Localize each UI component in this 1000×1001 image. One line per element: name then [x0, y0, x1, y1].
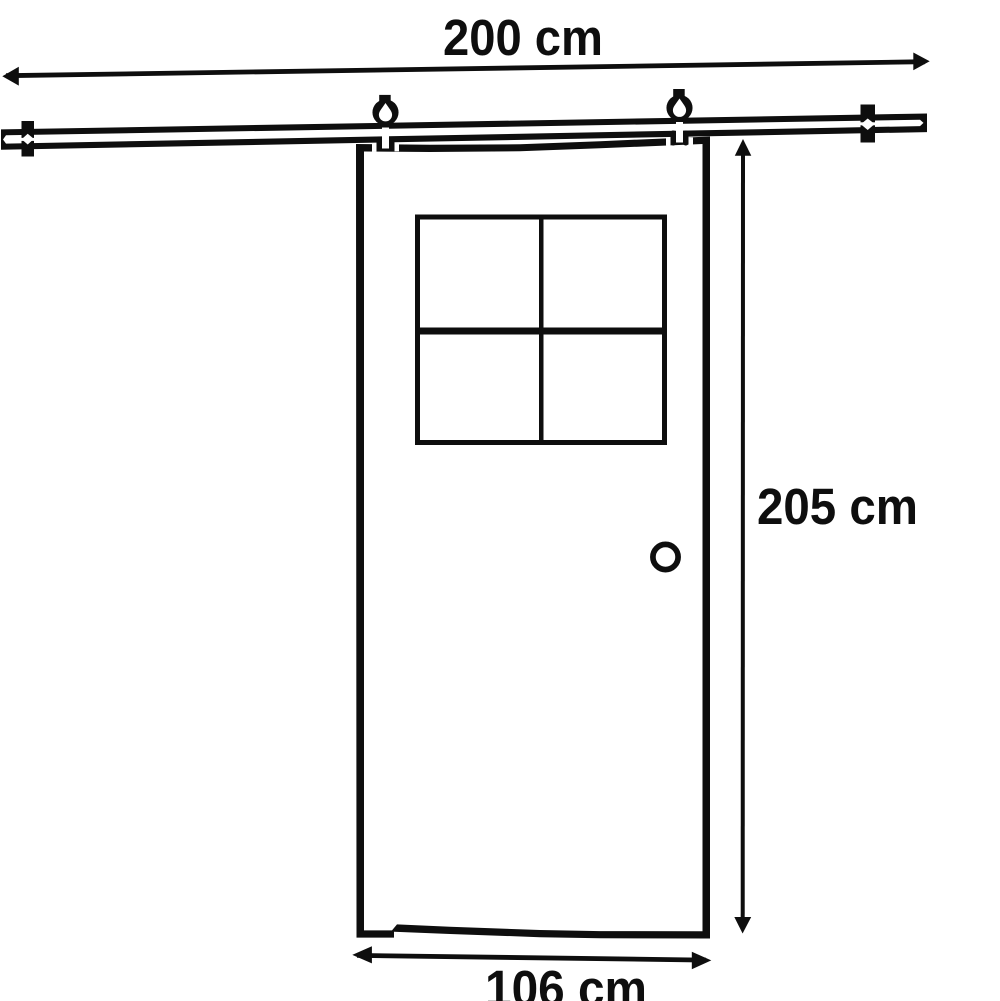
- svg-text:205 cm: 205 cm: [757, 478, 918, 535]
- svg-text:200 cm: 200 cm: [443, 9, 603, 66]
- svg-text:106 cm: 106 cm: [485, 960, 647, 1001]
